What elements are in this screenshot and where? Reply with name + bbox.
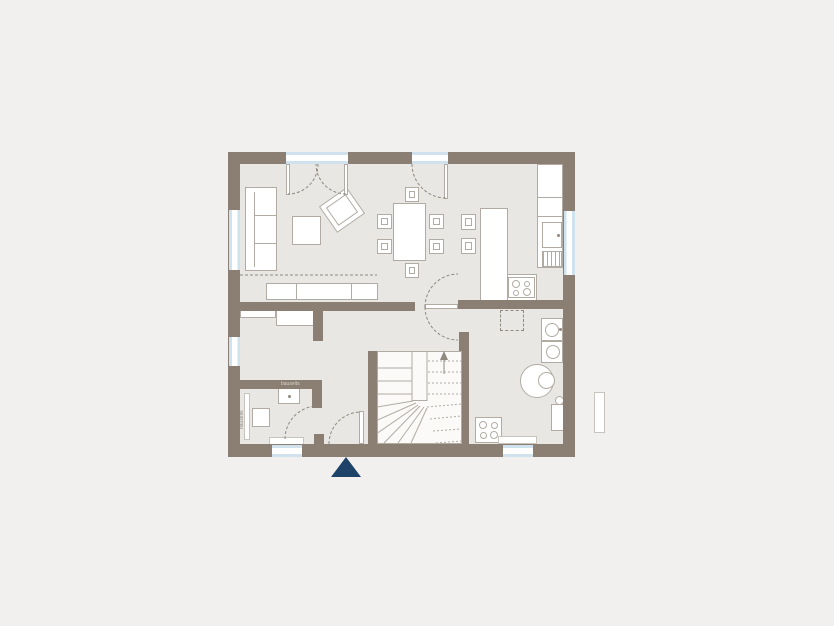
stair-void — [412, 352, 427, 401]
exterior-marker-rect — [594, 392, 605, 433]
wc-side-note: bauseits — [240, 405, 245, 429]
door-swing-arc — [412, 164, 446, 198]
plan-linework — [0, 0, 834, 626]
door-swing-arc — [316, 164, 346, 194]
door-swing-arc — [425, 307, 458, 340]
entrance-triangle-icon — [331, 457, 361, 477]
door-swing-arc — [425, 274, 458, 307]
door-swing-arc-wc — [285, 406, 318, 439]
floor-plan-canvas: bauseits bauseits — [0, 0, 834, 626]
wc-fixture-note: bauseits — [281, 382, 300, 387]
door-swing-arc-entrance — [329, 412, 361, 444]
door-swing-arc — [288, 164, 318, 194]
staircase — [378, 351, 462, 444]
